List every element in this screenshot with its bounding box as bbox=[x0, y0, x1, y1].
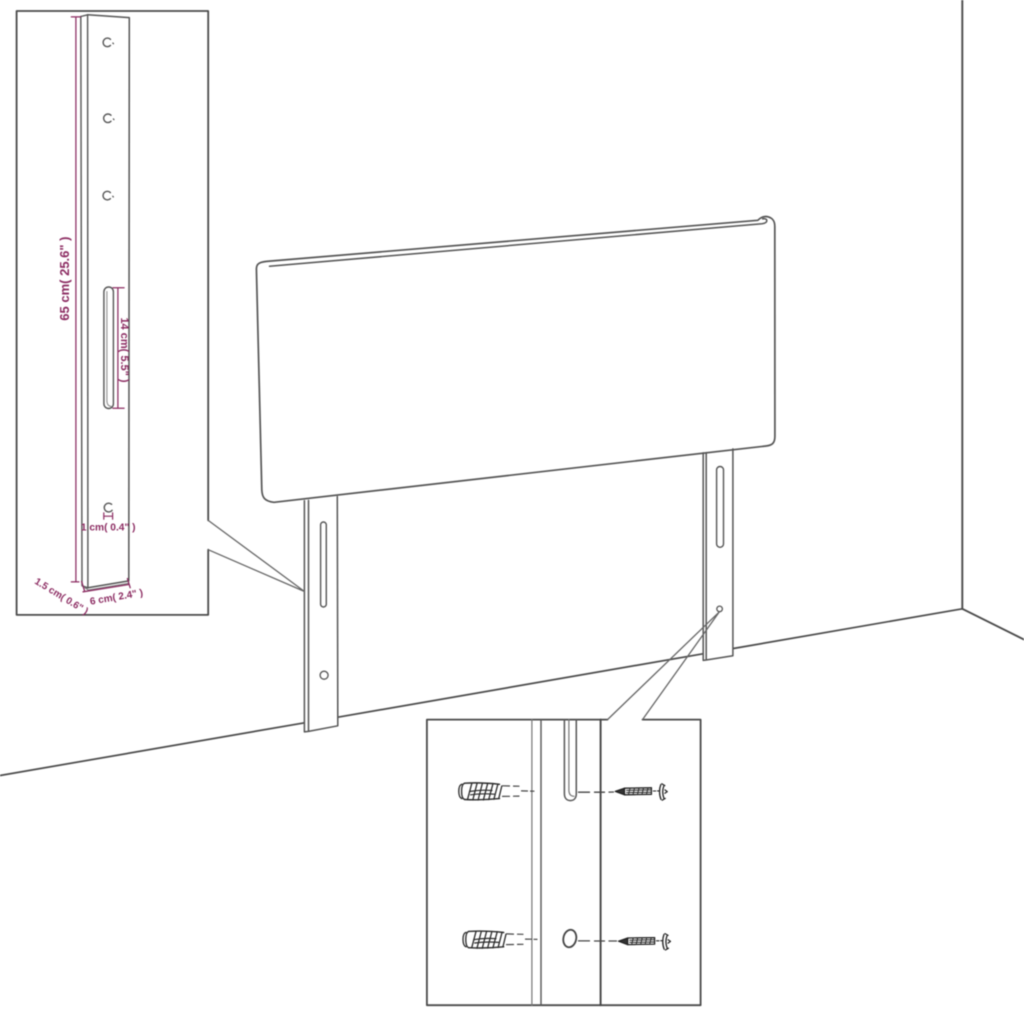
svg-text:14 cm( 5.5" ): 14 cm( 5.5" ) bbox=[118, 317, 130, 382]
svg-text:1 cm( 0.4" ): 1 cm( 0.4" ) bbox=[81, 523, 136, 534]
svg-text:65 cm( 25.6" ): 65 cm( 25.6" ) bbox=[57, 236, 72, 320]
